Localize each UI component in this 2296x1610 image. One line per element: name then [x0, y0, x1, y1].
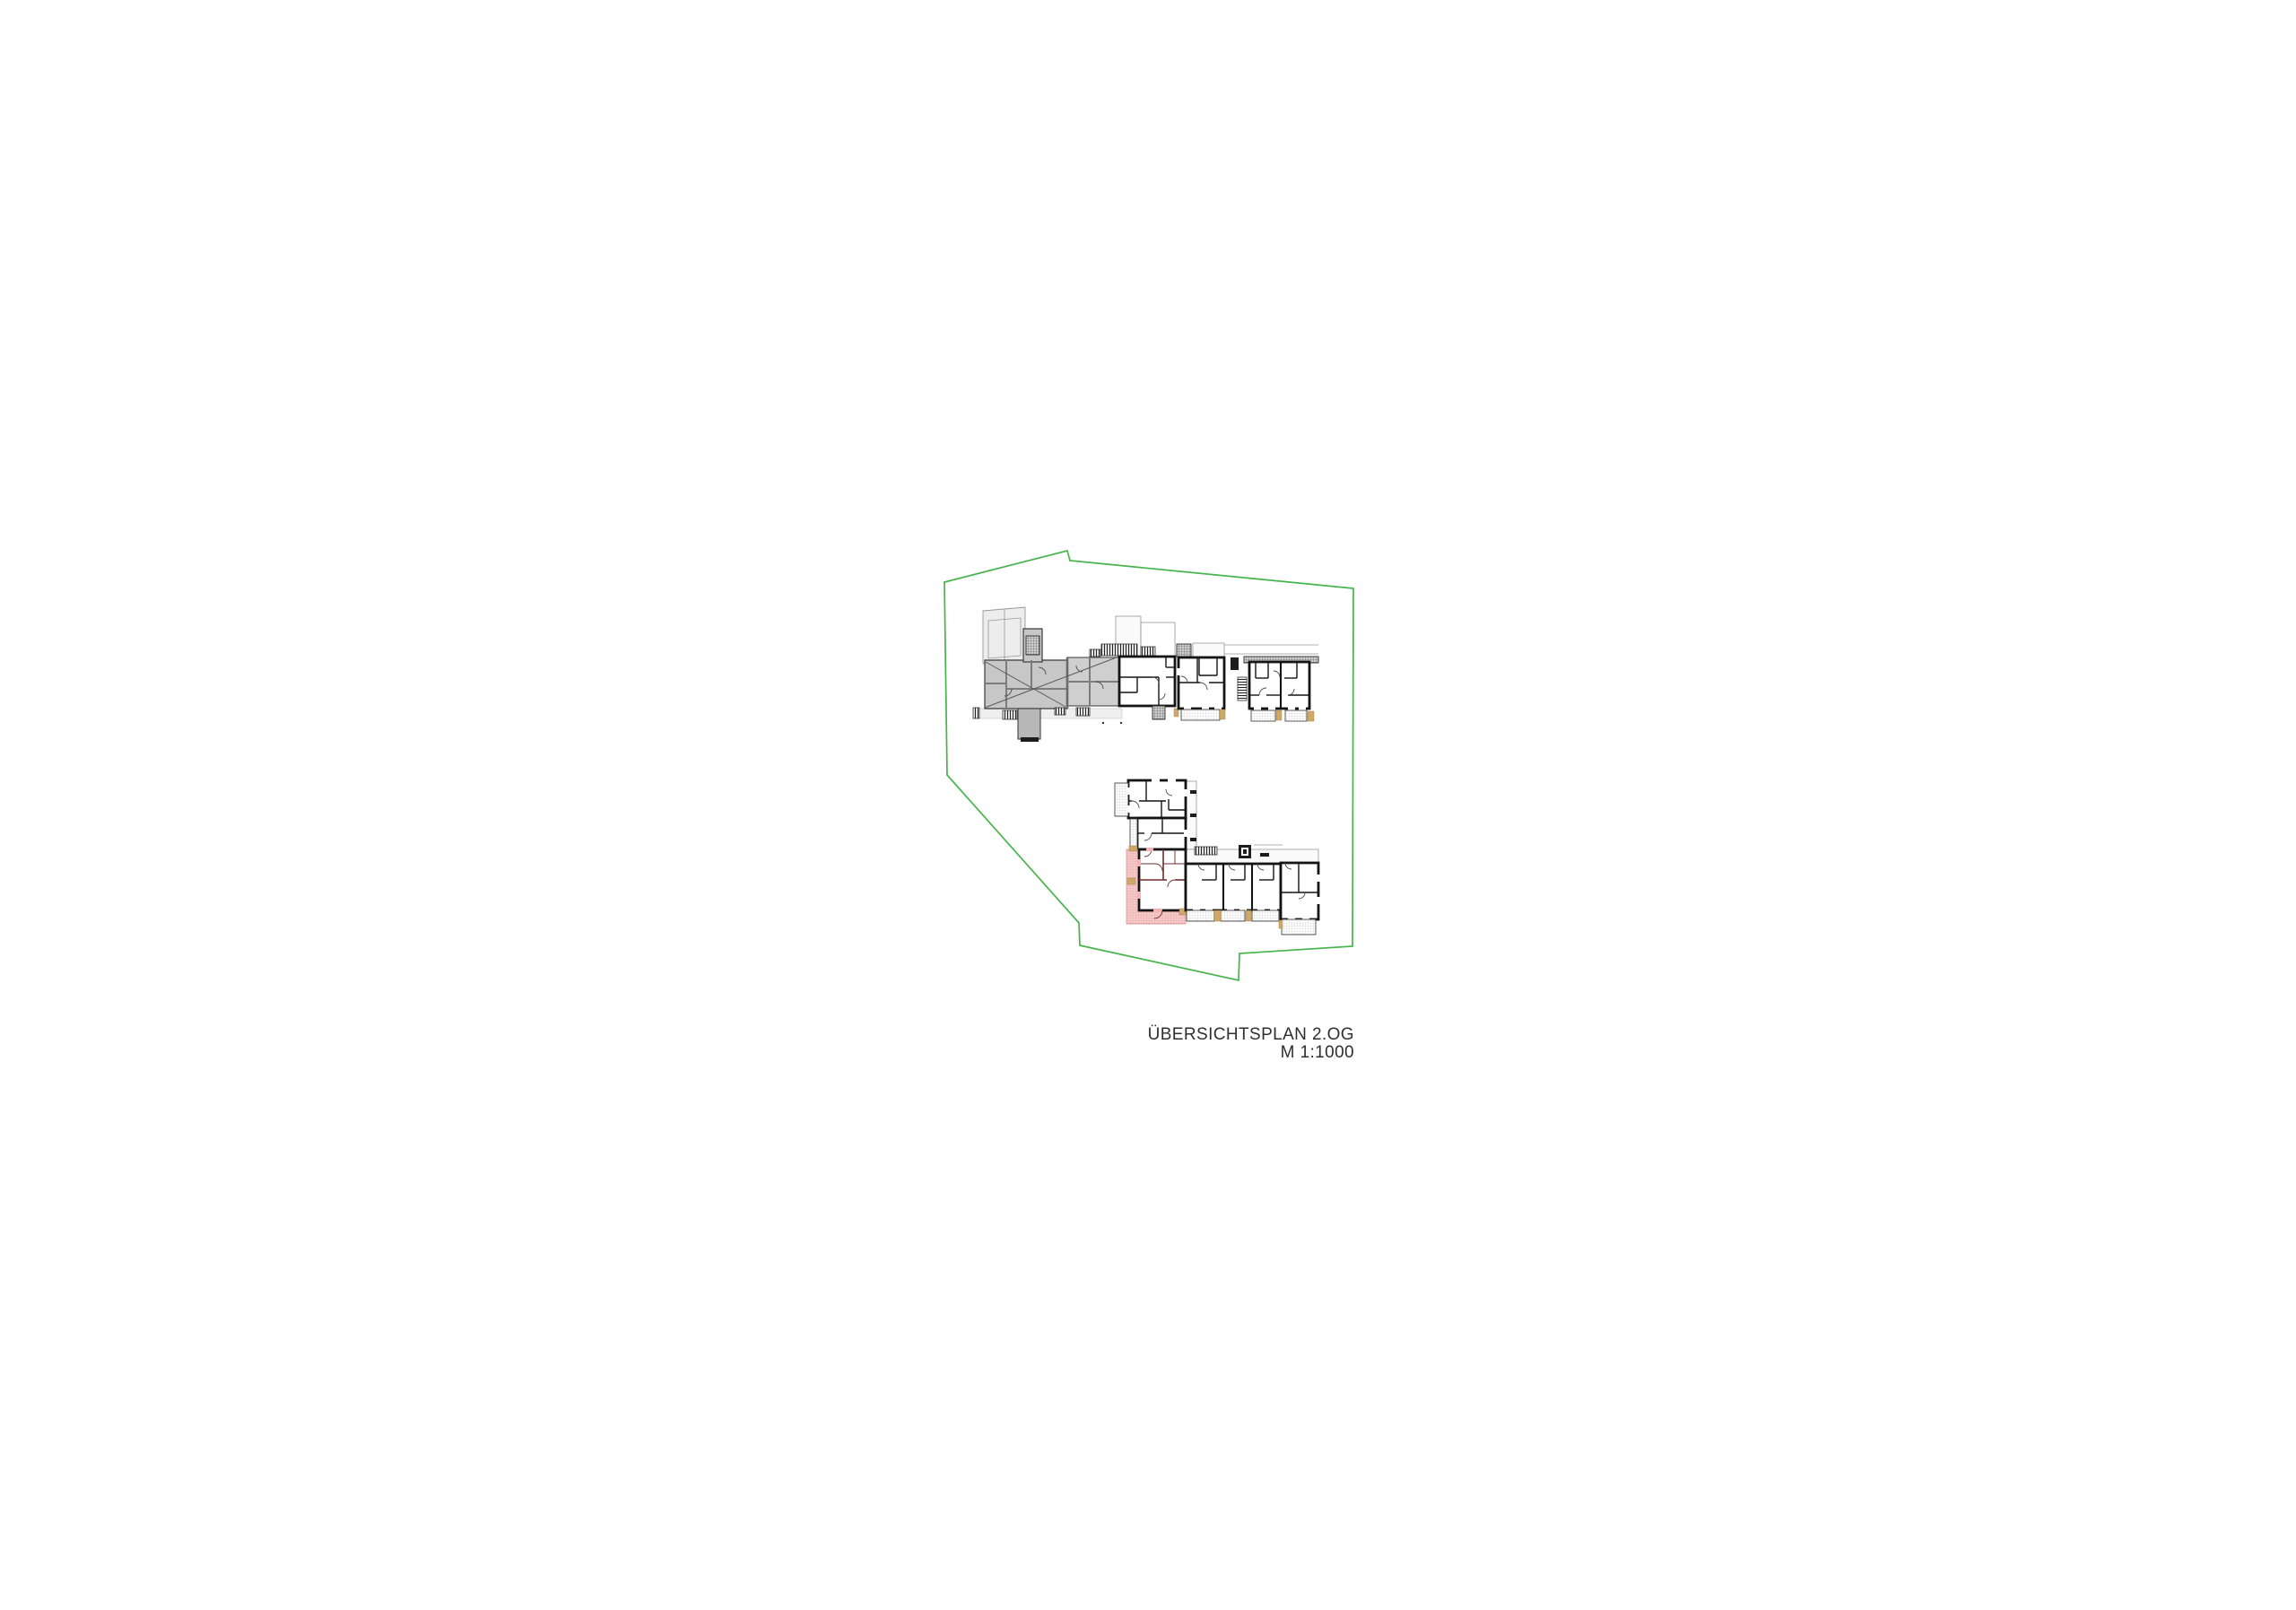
pergola-grate-3 [1141, 647, 1155, 656]
overview-plan-page: ÜBERSICHTSPLAN 2.OG M 1:1000 [0, 0, 2296, 1610]
apartment-block-1 [1177, 657, 1225, 720]
door-marker-n3 [1308, 711, 1314, 721]
exterior-stair-4 [973, 708, 979, 718]
lower-wing-body [1186, 864, 1281, 910]
building-north [973, 607, 1318, 742]
pergola-grate-1 [1101, 644, 1137, 656]
lower-wing-balcony-1 [1187, 910, 1214, 921]
exterior-stair-2 [1055, 708, 1065, 715]
pergola-grate-2 [1090, 649, 1100, 657]
existing-apron [978, 709, 1122, 718]
door-marker-n2 [1276, 710, 1282, 720]
block2-body [1249, 662, 1309, 709]
existing-annex-foot [1021, 737, 1039, 742]
block2-balcony-1 [1251, 710, 1275, 721]
site-plan-drawing [0, 0, 2296, 1610]
plan-caption: ÜBERSICHTSPLAN 2.OG M 1:1000 [906, 1026, 1354, 1061]
plan-scale: M 1:1000 [906, 1044, 1354, 1062]
door-marker-n1 [1220, 709, 1225, 719]
highlighted-unit [1126, 846, 1187, 924]
door-marker-s5 [1246, 910, 1251, 921]
lower-wing-balcony-4 [1282, 919, 1316, 935]
exterior-stair-1 [1003, 710, 1017, 719]
shaft-wall [1231, 657, 1239, 670]
setback-tick-1 [1190, 790, 1196, 794]
door-marker-s6 [1279, 920, 1283, 928]
door-marker-s1 [1129, 846, 1137, 851]
exterior-stair-3 [1076, 708, 1090, 716]
dormer-box [1193, 643, 1224, 657]
block2-balcony-2 [1285, 710, 1307, 721]
lower-wing-stair [1195, 847, 1217, 855]
upper-wing [1115, 779, 1187, 849]
lower-wing-balcony-2 [1221, 910, 1245, 921]
block1-balcony [1181, 709, 1220, 720]
elevator [1239, 845, 1251, 858]
door-marker-s4 [1214, 910, 1221, 921]
plan-title: ÜBERSICHTSPLAN 2.OG [906, 1026, 1354, 1044]
upper-wing-apartment-1 [1128, 780, 1186, 818]
door-marker-s2 [1127, 878, 1135, 884]
existing-south-annex [1018, 709, 1040, 739]
survey-dot-2 [1120, 722, 1122, 724]
upper-wing-balcony-2 [1130, 819, 1137, 848]
dormer-grate [1177, 644, 1191, 657]
lower-wing-balcony-3 [1252, 910, 1279, 921]
corridor-tick [1260, 853, 1269, 857]
corridor-section [1119, 657, 1178, 719]
stair-tower-hatch [1026, 636, 1039, 655]
shaft-stair [1238, 677, 1247, 701]
lower-wing-end-unit [1281, 863, 1318, 919]
building-south [1115, 779, 1320, 935]
apartment-block-2 [1249, 662, 1314, 721]
roof-entry-canopy [983, 607, 1025, 664]
setback-tick-2 [1190, 814, 1196, 817]
setback-tick-3 [1190, 838, 1196, 841]
stair-shaft-north [1231, 657, 1247, 701]
corridor-stair [1152, 706, 1165, 719]
upper-wing-balcony-1 [1115, 783, 1128, 816]
survey-dot-1 [1102, 722, 1104, 724]
